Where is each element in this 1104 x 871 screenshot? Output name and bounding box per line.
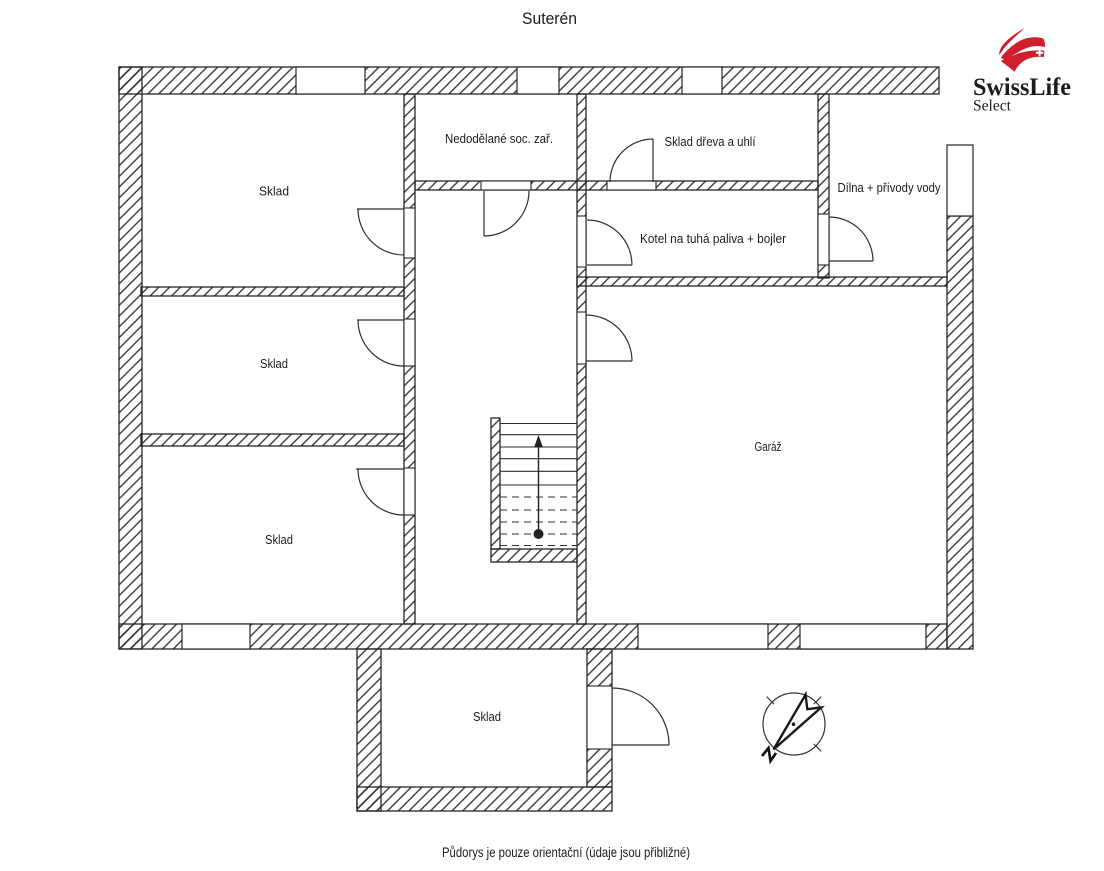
svg-text:Dílna + přívody vody: Dílna + přívody vody — [838, 180, 941, 195]
svg-text:Kotel na tuhá paliva + bojler: Kotel na tuhá paliva + bojler — [640, 231, 787, 246]
svg-text:Sklad dřeva a uhlí: Sklad dřeva a uhlí — [665, 134, 756, 149]
svg-text:Půdorys je pouze orientační (ú: Půdorys je pouze orientační (údaje jsou … — [442, 845, 690, 860]
svg-text:Sklad: Sklad — [473, 709, 501, 724]
svg-text:Select: Select — [973, 98, 1012, 115]
svg-text:Sklad: Sklad — [260, 356, 288, 371]
svg-text:Sklad: Sklad — [259, 184, 289, 199]
svg-text:Nedodělané soc. zař.: Nedodělané soc. zař. — [445, 131, 553, 146]
svg-text:Suterén: Suterén — [522, 10, 577, 28]
svg-text:Garáž: Garáž — [755, 439, 782, 454]
svg-text:Sklad: Sklad — [265, 532, 293, 547]
